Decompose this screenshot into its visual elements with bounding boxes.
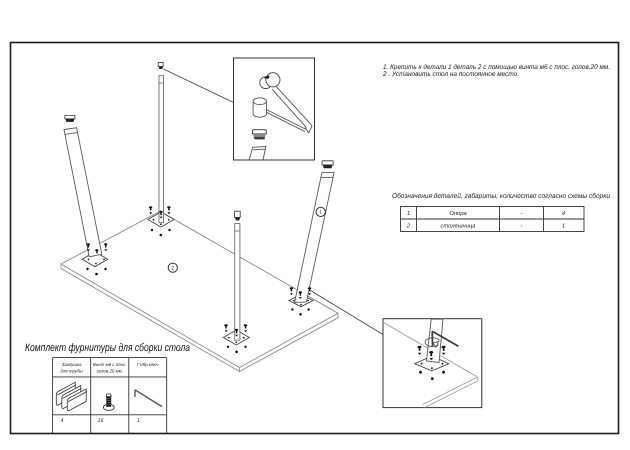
svg-text:-: - [521,211,523,217]
svg-text:2 . Установить стол на постоян: 2 . Установить стол на постоянное место. [382,71,519,78]
svg-text:-: - [521,224,523,230]
svg-text:Обозначения деталей, габариты,: Обозначения деталей, габариты, количеств… [392,192,610,200]
svg-text:1: 1 [562,224,565,230]
svg-text:Комплект фурнитуры для сборки: Комплект фурнитуры для сборки стола [25,342,190,354]
svg-text:1: 1 [319,210,322,215]
svg-text:Заглушка: Заглушка [62,362,83,367]
svg-text:столешница: столешница [440,224,476,230]
svg-text:Опора: Опора [449,210,467,217]
svg-text:16: 16 [98,418,104,424]
svg-text:1: 1 [407,211,410,217]
svg-text:голов.20 мм.: голов.20 мм. [97,369,123,374]
svg-text:4: 4 [61,418,64,424]
svg-text:для трубы: для трубы [60,369,83,374]
svg-text:2: 2 [172,266,175,271]
svg-text:Винт м6 с плос.: Винт м6 с плос. [93,362,127,367]
svg-text:Г'обр.ключ: Г'обр.ключ [137,362,159,367]
svg-text:4: 4 [562,211,565,217]
svg-text:1: 1 [137,418,140,424]
